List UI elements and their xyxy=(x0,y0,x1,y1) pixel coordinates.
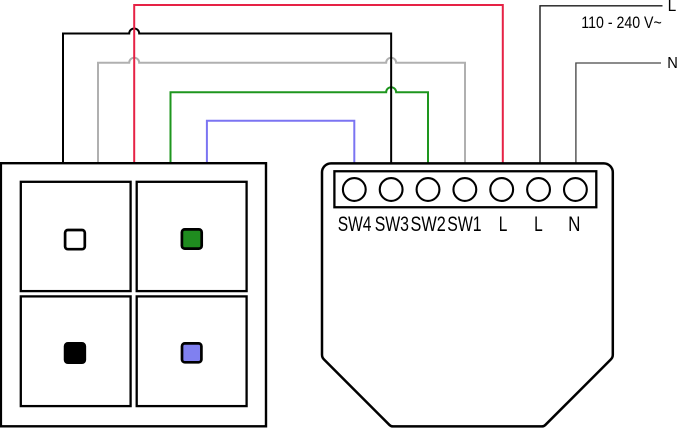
svg-text:110 - 240 V~: 110 - 240 V~ xyxy=(581,13,662,32)
svg-text:SW2: SW2 xyxy=(411,213,446,236)
svg-text:SW1: SW1 xyxy=(447,213,481,236)
svg-text:L: L xyxy=(668,0,677,15)
svg-text:L: L xyxy=(499,213,508,236)
svg-text:N: N xyxy=(667,55,677,72)
svg-text:SW4: SW4 xyxy=(338,213,372,236)
svg-text:N: N xyxy=(568,213,580,236)
svg-text:L: L xyxy=(534,213,543,236)
svg-text:SW3: SW3 xyxy=(375,213,409,236)
